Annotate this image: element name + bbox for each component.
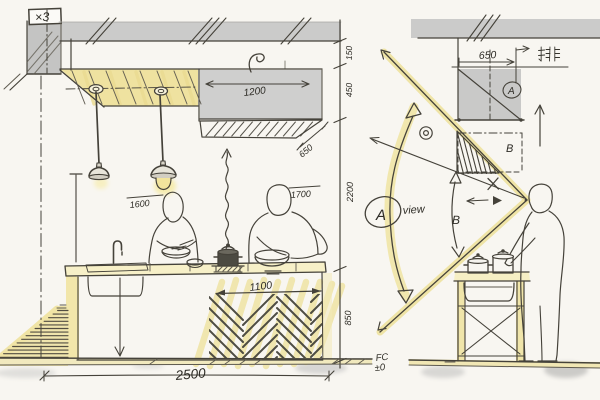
svg-text:1700: 1700 (290, 189, 311, 200)
svg-text:A: A (375, 207, 386, 224)
svg-text:450: 450 (344, 83, 354, 97)
svg-text:A: A (507, 86, 515, 97)
svg-text:view: view (402, 203, 426, 217)
svg-text:150: 150 (344, 46, 354, 60)
svg-text:1600: 1600 (129, 198, 150, 210)
svg-text:850: 850 (343, 310, 353, 325)
svg-text:B: B (452, 213, 460, 227)
svg-text:±0: ±0 (374, 362, 386, 374)
svg-text:650: 650 (479, 49, 497, 62)
svg-text:2500: 2500 (174, 365, 207, 383)
svg-text:2200: 2200 (345, 182, 355, 203)
svg-text:B: B (506, 143, 513, 155)
